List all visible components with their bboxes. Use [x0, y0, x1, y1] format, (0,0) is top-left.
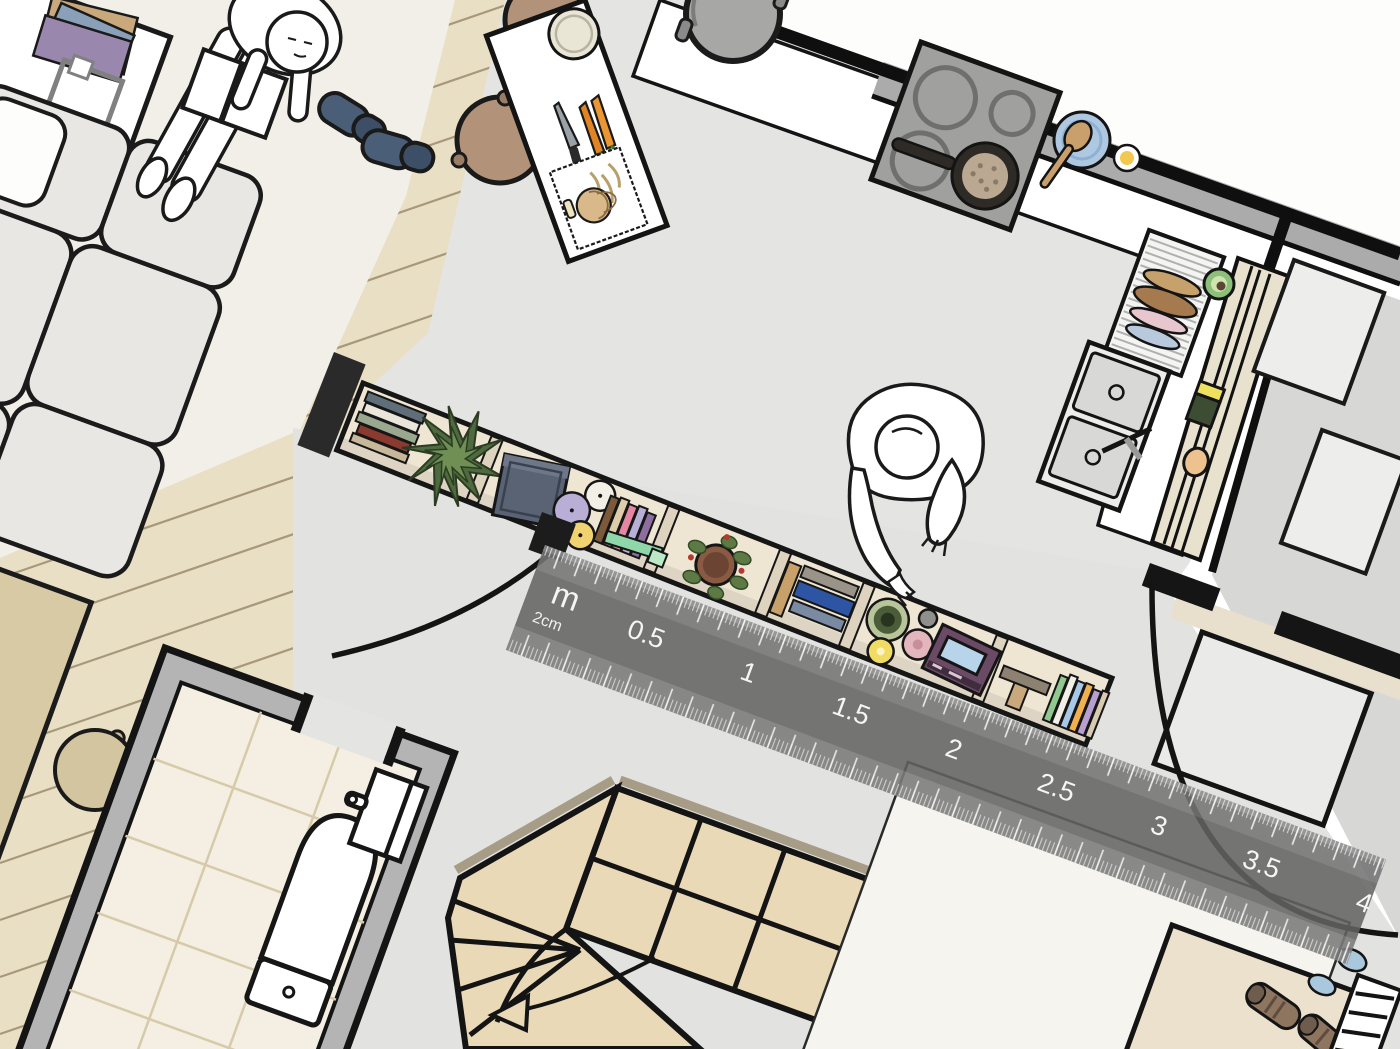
avocado-icon	[1204, 269, 1234, 299]
floor-plan-illustration: m 2cm 0.5 1 1.5 2 2.5 3 3.5 4	[0, 0, 1400, 1049]
egg-dish-icon	[1114, 145, 1140, 171]
head-icon	[267, 12, 327, 72]
head-icon	[876, 416, 938, 478]
floor-plan-canvas: m 2cm 0.5 1 1.5 2 2.5 3 3.5 4	[0, 0, 1400, 1049]
